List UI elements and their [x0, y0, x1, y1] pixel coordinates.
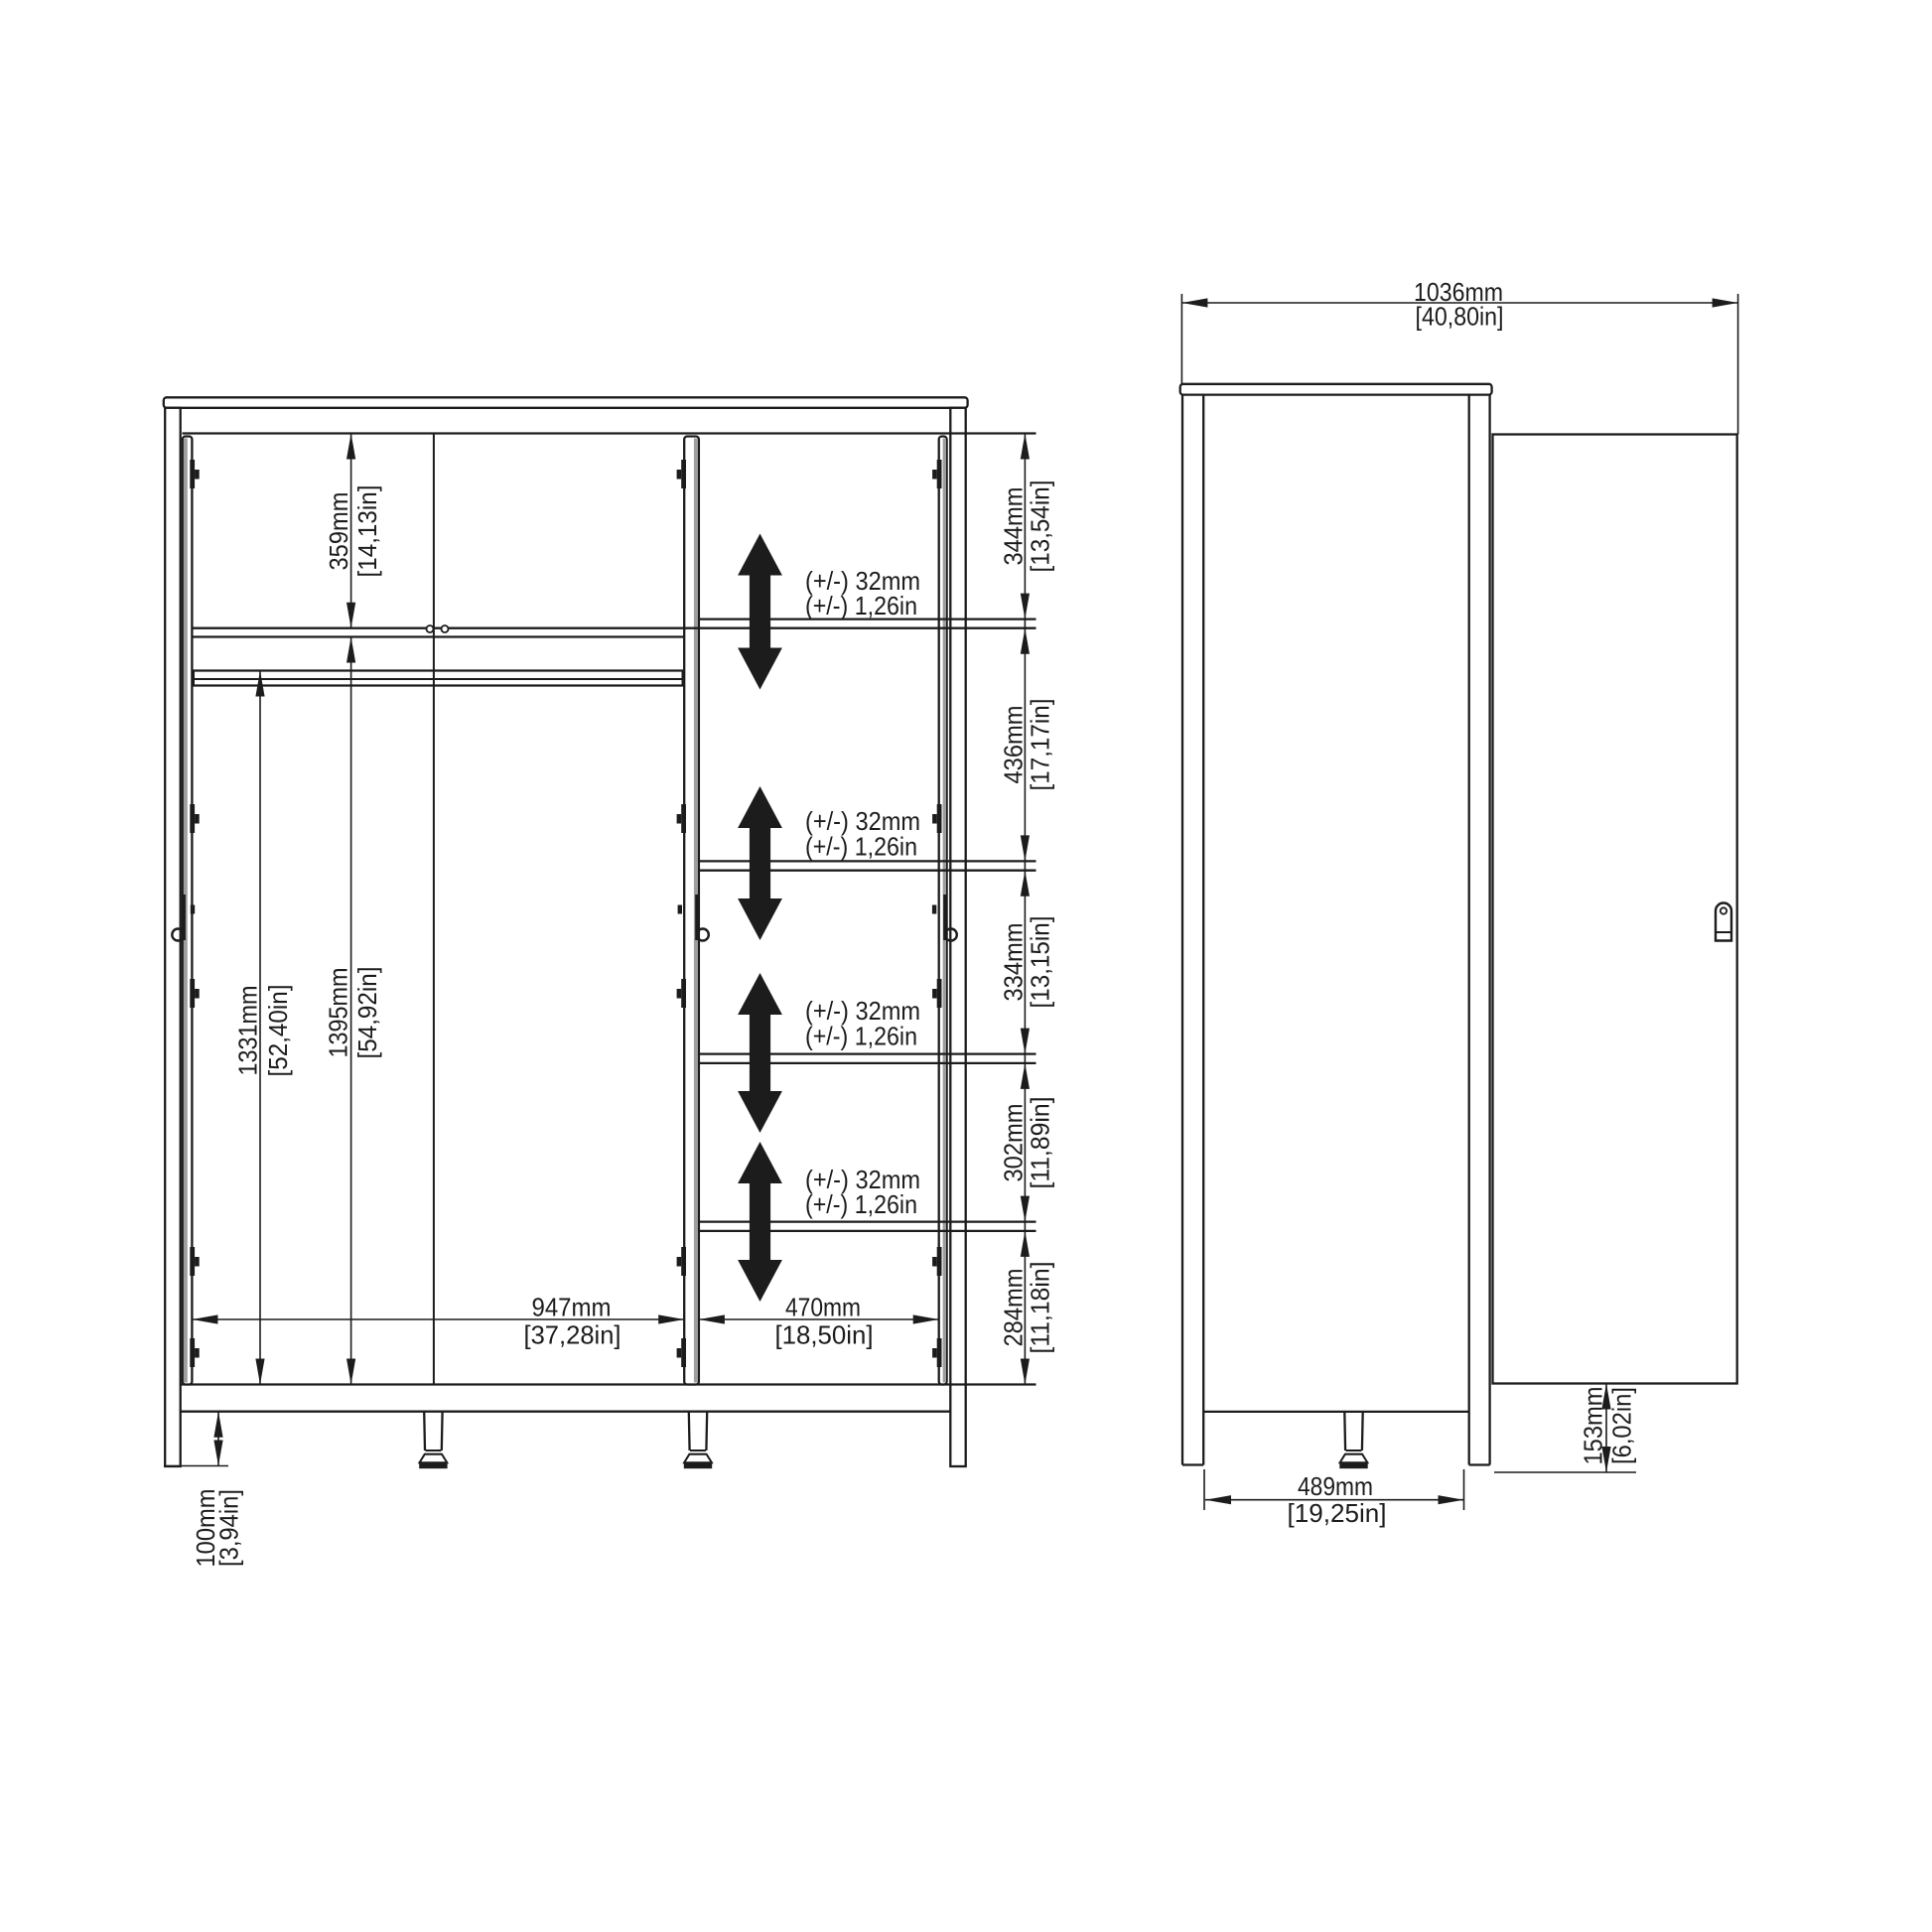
svg-text:[11,89in]: [11,89in]: [1026, 1097, 1055, 1189]
svg-text:[6,02in]: [6,02in]: [1607, 1387, 1637, 1464]
svg-text:[18,50in]: [18,50in]: [775, 1320, 874, 1350]
svg-text:489mm: 489mm: [1298, 1471, 1373, 1501]
svg-text:(+/-) 1,26in: (+/-) 1,26in: [805, 832, 917, 862]
svg-text:284mm: 284mm: [999, 1269, 1029, 1347]
svg-text:359mm: 359mm: [324, 492, 353, 571]
svg-text:[11,18in]: [11,18in]: [1026, 1262, 1055, 1354]
svg-text:153mm: 153mm: [1579, 1387, 1608, 1465]
svg-text:[13,54in]: [13,54in]: [1026, 481, 1055, 573]
svg-text:[13,15in]: [13,15in]: [1026, 916, 1055, 1009]
svg-text:1395mm: 1395mm: [324, 968, 353, 1058]
svg-text:(+/-) 1,26in: (+/-) 1,26in: [805, 1022, 917, 1051]
svg-text:[19,25in]: [19,25in]: [1288, 1498, 1387, 1528]
svg-text:470mm: 470mm: [785, 1293, 861, 1322]
svg-text:[37,28in]: [37,28in]: [524, 1320, 621, 1350]
svg-text:302mm: 302mm: [999, 1104, 1029, 1182]
svg-text:[17,17in]: [17,17in]: [1026, 699, 1055, 791]
svg-text:[40,80in]: [40,80in]: [1416, 302, 1504, 332]
svg-text:436mm: 436mm: [999, 706, 1029, 784]
svg-text:334mm: 334mm: [999, 923, 1029, 1002]
svg-text:[14,13in]: [14,13in]: [352, 485, 382, 578]
svg-text:[52,40in]: [52,40in]: [263, 985, 293, 1077]
svg-text:344mm: 344mm: [999, 487, 1029, 566]
svg-text:(+/-) 1,26in: (+/-) 1,26in: [805, 591, 917, 621]
svg-text:1331mm: 1331mm: [233, 986, 263, 1076]
svg-text:947mm: 947mm: [532, 1293, 612, 1322]
svg-text:(+/-) 1,26in: (+/-) 1,26in: [805, 1189, 917, 1219]
svg-text:[3,94in]: [3,94in]: [214, 1489, 244, 1567]
svg-text:[54,92in]: [54,92in]: [352, 967, 382, 1059]
